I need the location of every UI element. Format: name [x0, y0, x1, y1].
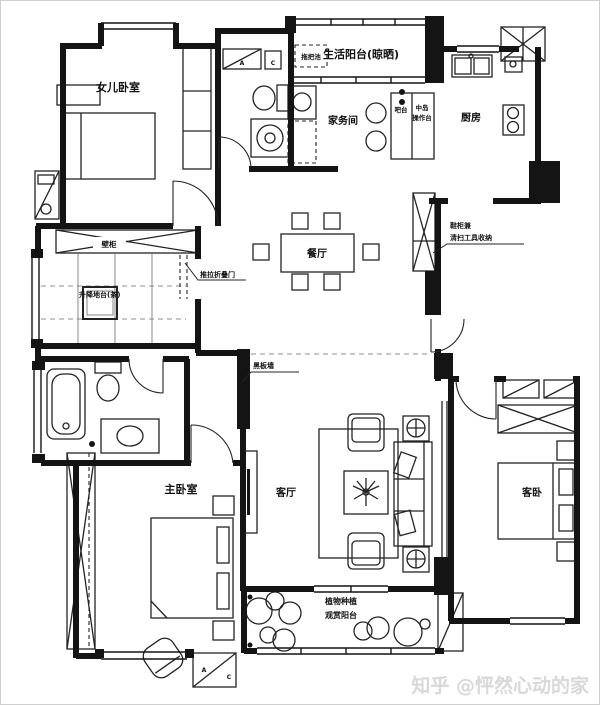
- rug: [319, 429, 398, 558]
- top-window-vents: [503, 380, 579, 398]
- bed: [65, 113, 155, 179]
- pillow: [559, 505, 573, 531]
- tea-platform-label: 升降地台(茶): [79, 290, 120, 299]
- shoe-cabinet-annotation-2: 清扫工具收纳: [450, 233, 492, 242]
- kitchen-label: 厨房: [461, 111, 481, 124]
- plant-balcony-label-1: 植物种植: [324, 596, 357, 606]
- living-guest-partition: [442, 401, 447, 557]
- stool: [366, 131, 386, 151]
- pillow: [217, 527, 229, 563]
- chair: [139, 634, 186, 681]
- island-label-2: 操作台: [412, 113, 432, 122]
- toilet-icon: [253, 86, 275, 110]
- bar-counter-label: 吧台: [395, 105, 409, 114]
- stool: [366, 103, 386, 123]
- daughter-bedroom-label: 女儿卧室: [96, 80, 140, 94]
- top-bathroom-door: [219, 137, 251, 169]
- floor-plan-page: 女儿卧室 生活阳台(晾晒) 拖把池 家务间 吧台 中岛 操作台 厨房 餐厅 壁柜…: [0, 0, 600, 705]
- left-ac-bay: [35, 171, 59, 219]
- guest-bedroom-furniture: [498, 380, 579, 561]
- sofa-pillow: [394, 452, 417, 478]
- blackboard-wall-leader: [242, 372, 299, 382]
- plant-icon: [246, 598, 272, 624]
- blackboard-wall-annotation: 黑板墙: [253, 361, 274, 370]
- entry-door: [431, 319, 464, 352]
- laundry-room-fixtures: [288, 86, 434, 163]
- nightstand: [213, 621, 234, 640]
- mop-sink-label: 拖把池: [301, 52, 321, 61]
- ac-letter-a: A: [202, 667, 207, 674]
- plant-icon: [354, 622, 372, 640]
- nightstand: [213, 496, 234, 515]
- daughter-bedroom-door: [173, 181, 218, 226]
- living-room-label: 客厅: [275, 486, 296, 499]
- zhihu-watermark: 知乎 @怦然心动的家: [411, 674, 590, 697]
- chair: [324, 274, 340, 290]
- plant-icon: [394, 618, 422, 646]
- basin-icon: [117, 426, 143, 446]
- windows: [32, 19, 565, 659]
- floor-drain: [89, 441, 95, 447]
- chair: [363, 244, 379, 260]
- toilet-tank: [95, 362, 121, 373]
- guest-bedroom-label: 客卧: [521, 486, 542, 499]
- blackboard-wall-mass: [237, 349, 250, 429]
- ac-letter-c: C: [271, 60, 276, 67]
- plant-icon: [353, 478, 379, 506]
- stove-icon: [503, 105, 524, 135]
- life-balcony-label: 生活阳台(晾晒): [323, 47, 399, 61]
- bed: [498, 463, 578, 539]
- folding-door-annotation: 推拉折叠门: [200, 270, 235, 279]
- wardrobe: [183, 48, 211, 169]
- housework-room-label: 家务间: [328, 114, 358, 127]
- master-bedroom-label: 主卧室: [165, 482, 198, 496]
- bed: [151, 518, 233, 618]
- basin-icon: [257, 125, 283, 151]
- guest-bedroom-door: [456, 379, 496, 419]
- dining-furniture: [253, 193, 435, 290]
- toilet-tank: [277, 85, 289, 111]
- wall-cabinet-label: 壁柜: [102, 239, 117, 249]
- walls: [36, 23, 580, 658]
- tatami-room: [41, 230, 198, 346]
- bottom-ac-bay: [193, 653, 236, 687]
- toilet-icon: [97, 375, 119, 401]
- dining-room-label: 餐厅: [306, 247, 327, 260]
- island-label-1: 中岛: [416, 103, 430, 112]
- floor-plan-svg: 女儿卧室 生活阳台(晾晒) 拖把池 家务间 吧台 中岛 操作台 厨房 餐厅 壁柜…: [1, 1, 600, 705]
- chair: [292, 213, 308, 229]
- master-bedroom-furniture: [67, 453, 234, 682]
- living-room-furniture: [244, 414, 432, 572]
- tv-icon: [247, 469, 250, 515]
- plant-balcony-label-2: 观赏阳台: [325, 610, 357, 620]
- shoe-cabinet-leader: [433, 244, 524, 253]
- vanity: [101, 419, 159, 453]
- master-bedroom-door: [191, 425, 233, 463]
- chair: [253, 244, 269, 260]
- chair: [292, 274, 308, 290]
- pillow: [559, 469, 573, 495]
- daughter-bedroom-furniture: [57, 48, 211, 179]
- ac-letter-a: A: [240, 60, 245, 67]
- chair: [324, 213, 340, 229]
- shoe-cabinet-annotation-1: 鞋柜兼: [450, 221, 472, 230]
- master-bathroom-door: [129, 359, 163, 393]
- ac-letter-c: C: [227, 674, 232, 681]
- master-bathroom-fixtures: [47, 362, 159, 453]
- pillow: [217, 573, 229, 609]
